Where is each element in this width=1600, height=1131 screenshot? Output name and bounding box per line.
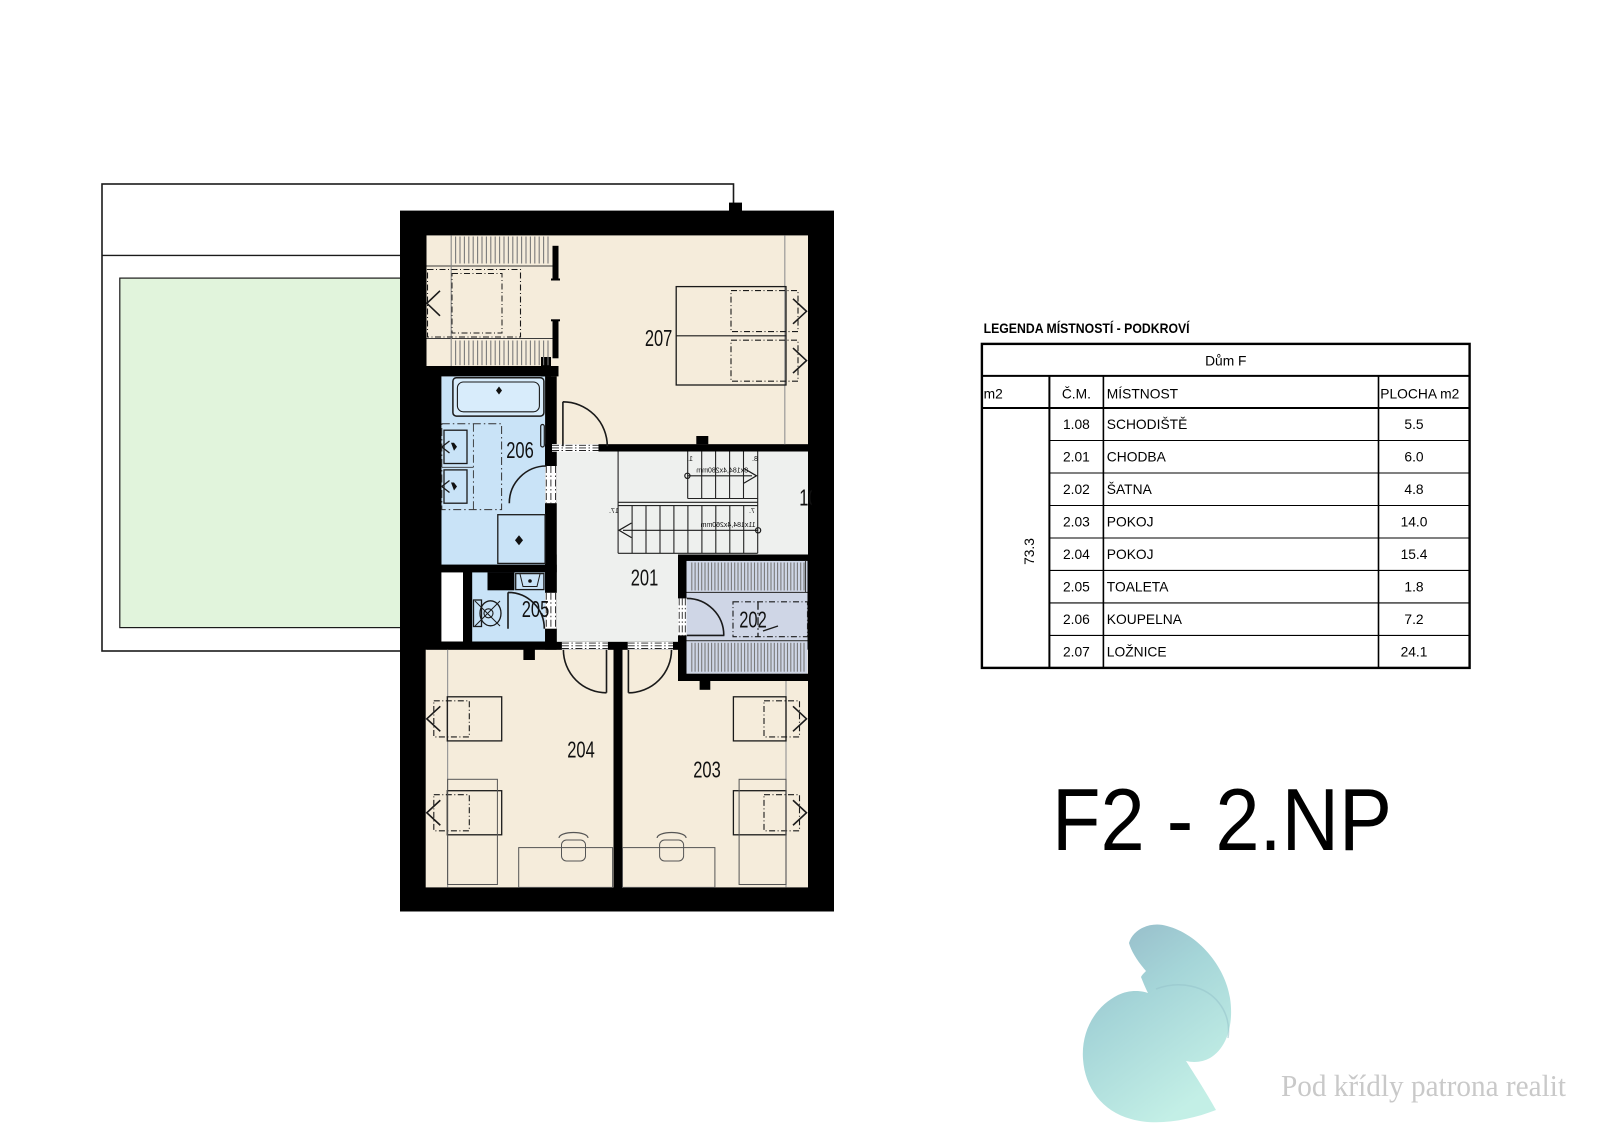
svg-text:5.5: 5.5 [1404, 417, 1424, 432]
svg-text:LEGENDA MÍSTNOSTÍ - PODKROVÍ: LEGENDA MÍSTNOSTÍ - PODKROVÍ [984, 320, 1191, 336]
svg-text:KOUPELNA: KOUPELNA [1107, 612, 1183, 627]
svg-text:CHODBA: CHODBA [1107, 450, 1167, 465]
svg-text:24.1: 24.1 [1401, 645, 1428, 660]
svg-text:14.0: 14.0 [1401, 515, 1428, 530]
svg-text:7.: 7. [749, 506, 755, 515]
svg-text:15.4: 15.4 [1401, 547, 1428, 562]
svg-text:2.03: 2.03 [1063, 515, 1090, 530]
svg-text:2.06: 2.06 [1063, 612, 1090, 627]
svg-text:205: 205 [522, 596, 550, 622]
svg-text:2.07: 2.07 [1063, 645, 1090, 660]
svg-text:TOALETA: TOALETA [1107, 580, 1169, 595]
svg-text:m2: m2 [984, 387, 1003, 402]
svg-text:201: 201 [631, 565, 659, 591]
svg-text:LOŽNICE: LOŽNICE [1107, 644, 1167, 660]
svg-text:8.: 8. [752, 454, 758, 463]
svg-text:17.: 17. [609, 506, 619, 515]
svg-text:SCHODIŠTĚ: SCHODIŠTĚ [1107, 416, 1188, 432]
svg-text:ŠATNA: ŠATNA [1107, 481, 1153, 497]
svg-text:MÍSTNOST: MÍSTNOST [1107, 386, 1179, 402]
svg-text:1.08: 1.08 [1063, 417, 1090, 432]
svg-text:73.3: 73.3 [1022, 538, 1037, 565]
svg-text:Pod křídly patrona realit: Pod křídly patrona realit [1281, 1068, 1566, 1103]
svg-text:7.2: 7.2 [1404, 612, 1423, 627]
svg-text:6.0: 6.0 [1404, 450, 1424, 465]
svg-text:Č.M.: Č.M. [1062, 386, 1091, 402]
svg-text:POKOJ: POKOJ [1107, 547, 1154, 562]
svg-text:206: 206 [506, 437, 534, 463]
svg-text:202: 202 [739, 607, 767, 633]
svg-text:2.01: 2.01 [1063, 450, 1090, 465]
svg-text:207: 207 [645, 325, 673, 351]
svg-text:Dům F: Dům F [1205, 354, 1246, 369]
svg-text:PLOCHA m2: PLOCHA m2 [1380, 387, 1459, 402]
svg-text:1.8: 1.8 [1404, 580, 1424, 595]
svg-text:203: 203 [693, 757, 721, 783]
svg-text:4.8: 4.8 [1404, 482, 1424, 497]
svg-text:POKOJ: POKOJ [1107, 515, 1154, 530]
svg-text:204: 204 [567, 737, 595, 763]
svg-text:2.05: 2.05 [1063, 580, 1090, 595]
svg-text:11x184,4x260mm: 11x184,4x260mm [700, 522, 755, 529]
svg-text:8x184,4x280mm: 8x184,4x280mm [696, 468, 748, 475]
svg-text:1.: 1. [687, 454, 693, 463]
svg-text:2.02: 2.02 [1063, 482, 1090, 497]
svg-text:2.04: 2.04 [1063, 547, 1090, 562]
svg-text:F2 - 2.NP: F2 - 2.NP [1052, 770, 1392, 869]
